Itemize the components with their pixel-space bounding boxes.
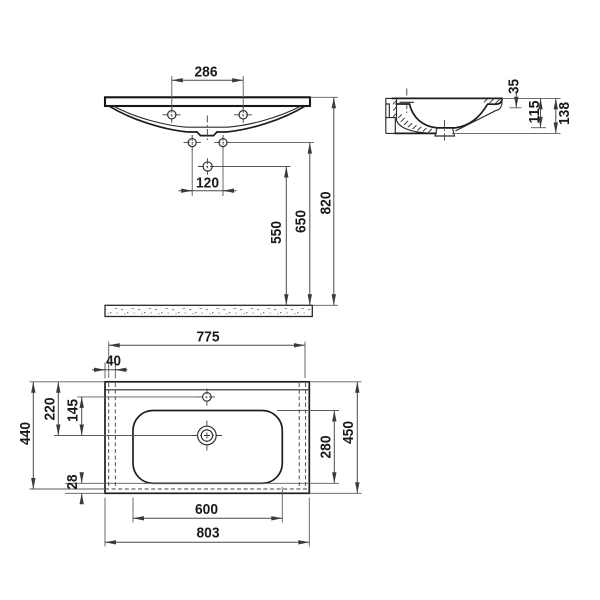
drawing-sheet: 286 120 550 650 820 — [0, 0, 600, 600]
side-view-section — [386, 89, 502, 141]
front-view-basin-outline — [105, 97, 310, 141]
front-view: 286 120 550 650 820 — [105, 64, 338, 317]
dim-bowl-inner-height: 115 — [526, 101, 543, 124]
plan-view-holes — [192, 389, 222, 453]
dim-deck-hole-spacing: 286 — [195, 64, 218, 81]
dim-front-lip: 28 — [64, 475, 81, 490]
technical-drawing: 286 120 550 650 820 — [0, 0, 600, 600]
plan-view: 775 40 440 220 145 — [17, 329, 362, 547]
floor-hatch — [105, 305, 312, 316]
dim-bowl-inner-depth: 280 — [318, 436, 335, 459]
front-view-dimensions: 286 120 550 650 820 — [172, 64, 338, 306]
dim-fixing-height: 650 — [293, 210, 310, 233]
side-view: 35 115 138 — [386, 79, 573, 141]
plan-bowl — [133, 411, 282, 484]
basin-top-rim — [105, 97, 310, 106]
side-view-dimensions: 35 115 138 — [452, 79, 573, 133]
dim-overall-height: 138 — [556, 102, 573, 125]
dim-tap-to-drain: 145 — [65, 399, 82, 422]
dim-side-offset: 40 — [106, 353, 121, 370]
dim-bowl-inner-width: 600 — [195, 501, 218, 518]
dim-rear-to-drain: 220 — [42, 398, 59, 421]
dim-drain-height: 550 — [268, 221, 285, 244]
dim-rim-to-ledge: 35 — [505, 79, 522, 94]
dim-rim-height: 820 — [318, 192, 335, 215]
dim-overall-width: 803 — [197, 525, 220, 542]
dim-underside-width: 775 — [197, 329, 220, 346]
dim-fixing-hole-spacing: 120 — [196, 175, 219, 192]
dim-overall-depth: 450 — [340, 421, 357, 444]
dim-underside-depth: 440 — [17, 422, 34, 445]
